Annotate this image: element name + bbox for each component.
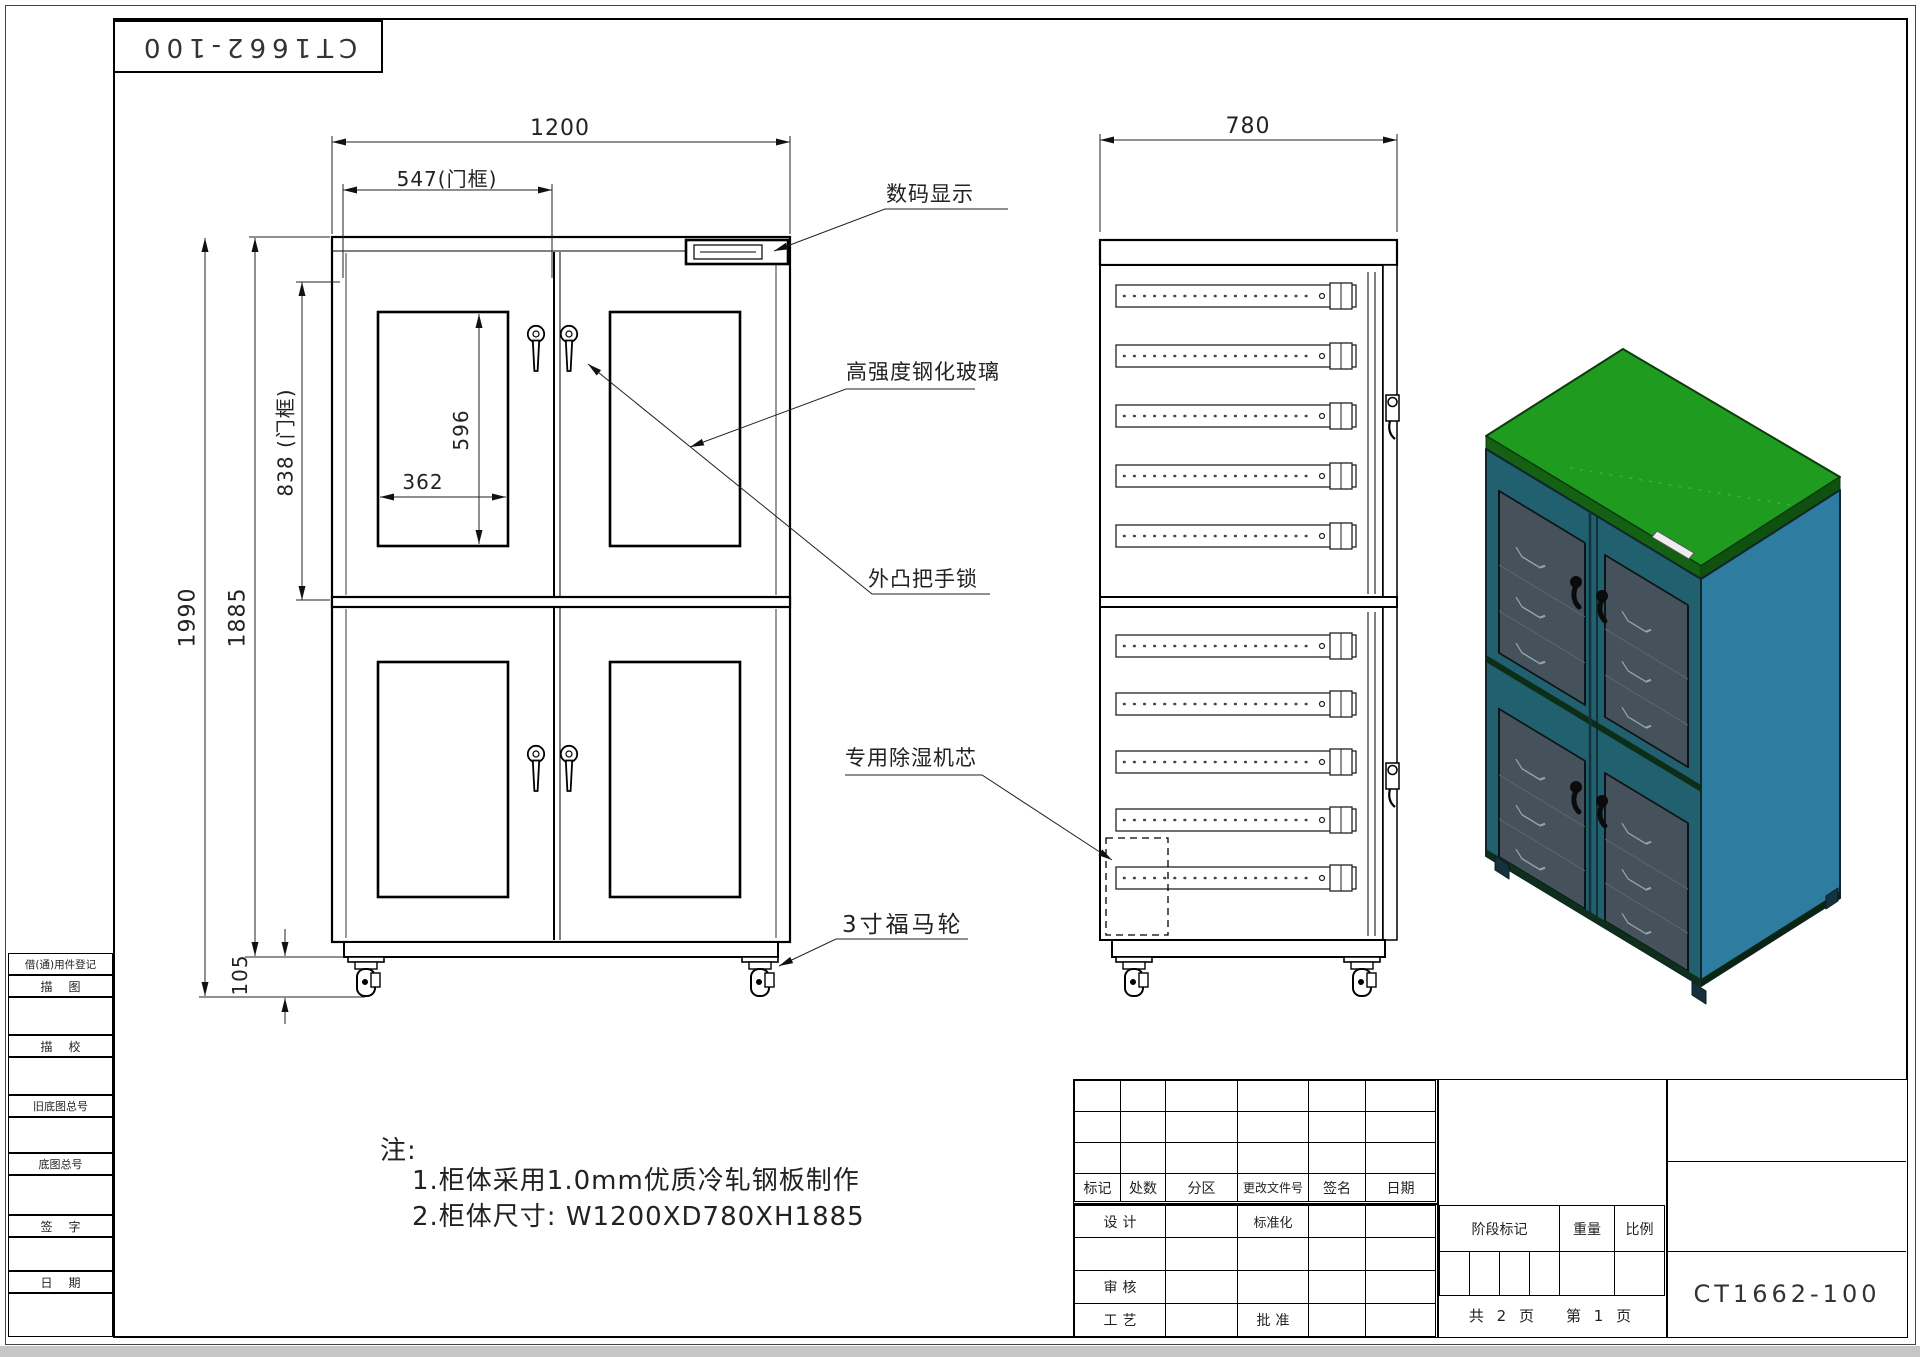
margin-field-blank — [8, 1293, 113, 1337]
margin-field-blank — [8, 1057, 113, 1095]
revision-cell — [1237, 1111, 1309, 1143]
revision-cell — [1365, 1111, 1436, 1143]
blank-cell — [1237, 1237, 1309, 1271]
stage-block: 阶段标记 重量 比例 共 2 页 第 1 页 — [1438, 1079, 1667, 1338]
revision-cell — [1308, 1080, 1366, 1112]
margin-field-blank — [8, 1237, 113, 1271]
revision-cell — [1074, 1111, 1121, 1143]
revision-cell — [1074, 1080, 1121, 1112]
dim-glass-width: 362 — [383, 470, 463, 494]
callout-digital-display: 数码显示 — [886, 178, 974, 208]
stage-cell — [1439, 1251, 1470, 1296]
revision-cell — [1237, 1080, 1309, 1112]
revision-cell — [1165, 1111, 1238, 1143]
revision-header-doc-no: 更改文件号 — [1237, 1173, 1309, 1202]
blank-cell — [1668, 1161, 1906, 1252]
blank-cell — [1365, 1270, 1436, 1304]
revision-cell — [1365, 1080, 1436, 1112]
sheet-total: 共 2 页 — [1469, 1305, 1538, 1326]
digital-display — [686, 240, 788, 264]
revision-cell — [1074, 1142, 1121, 1174]
blank-cell — [1668, 1080, 1906, 1162]
shelf-row — [1116, 403, 1356, 429]
margin-field-blank — [8, 1117, 113, 1153]
dim-total-height: 1990 — [176, 568, 201, 668]
margin-field-blank — [8, 997, 113, 1035]
check-label: 审核 — [1074, 1270, 1166, 1304]
revision-cell — [1308, 1111, 1366, 1143]
revision-cell — [1308, 1142, 1366, 1174]
dim-width-1200: 1200 — [510, 116, 610, 141]
weight-label: 重量 — [1559, 1205, 1615, 1252]
revision-cell — [1120, 1111, 1166, 1143]
shelf-row — [1116, 865, 1356, 891]
scale-value-cell — [1614, 1251, 1665, 1296]
dim-door-frame-height: 838 (门框) — [270, 368, 299, 518]
blank-cell — [1308, 1303, 1366, 1337]
blank-cell — [1365, 1205, 1436, 1238]
blank-cell — [1165, 1303, 1238, 1337]
callout-caster: 3寸福马轮 — [842, 905, 964, 939]
blank-cell — [1237, 1270, 1309, 1304]
revision-header-count: 处数 — [1120, 1173, 1166, 1202]
shelf-row — [1116, 691, 1356, 717]
dim-door-frame-width: 547(门框) — [377, 163, 517, 192]
blank-cell — [1165, 1205, 1238, 1238]
caster-icon — [348, 957, 384, 996]
margin-field-tracing-check: 描校 — [8, 1035, 113, 1057]
revision-header-date: 日期 — [1365, 1173, 1436, 1202]
margin-field-signature: 签字 — [8, 1215, 113, 1237]
shelf-row — [1116, 523, 1356, 549]
drawing-number-block: CT1662-100 — [1667, 1079, 1908, 1338]
blank-cell — [1074, 1237, 1166, 1271]
sheet-current: 第 1 页 — [1566, 1305, 1635, 1326]
shelf-row — [1116, 749, 1356, 775]
callout-dehumidifier: 专用除湿机芯 — [845, 742, 977, 772]
shelf-row — [1116, 343, 1356, 369]
margin-field-master-no: 底图总号 — [8, 1153, 113, 1175]
note-line-2: 2.柜体尺寸: W1200XD780XH1885 — [412, 1196, 865, 1233]
signature-table: 设计 标准化 审核 工艺 批准 — [1073, 1204, 1438, 1338]
blank-cell — [1308, 1205, 1366, 1238]
drawing-number: CT1662-100 — [1668, 1251, 1906, 1336]
callout-handle-lock: 外凸把手锁 — [868, 563, 978, 593]
standardization-label: 标准化 — [1237, 1205, 1309, 1238]
margin-field-blank — [8, 1175, 113, 1215]
side-view — [1100, 240, 1399, 996]
dim-glass-height: 596 — [449, 390, 473, 470]
blank-cell — [1439, 1080, 1665, 1206]
callout-tempered-glass: 高强度钢化玻璃 — [846, 356, 1000, 386]
shelf-row — [1116, 283, 1356, 309]
dim-depth-780: 780 — [1198, 114, 1298, 139]
revision-header-sign: 签名 — [1308, 1173, 1366, 1202]
blank-cell — [1365, 1237, 1436, 1271]
shelf-row — [1116, 633, 1356, 659]
revision-cell — [1365, 1142, 1436, 1174]
margin-field-tracing: 描图 — [8, 975, 113, 997]
margin-field-date: 日期 — [8, 1271, 113, 1293]
stage-cell — [1499, 1251, 1530, 1296]
approve-label: 批准 — [1237, 1303, 1309, 1337]
revision-table: 标记 处数 分区 更改文件号 签名 日期 — [1073, 1079, 1438, 1204]
shelf-row — [1116, 463, 1356, 489]
caster-icon — [1116, 957, 1152, 996]
revision-header-mark: 标记 — [1074, 1173, 1121, 1202]
design-label: 设计 — [1074, 1205, 1166, 1238]
caster-icon — [742, 957, 778, 996]
margin-field-reuse-record: 借(通)用件登记 — [8, 953, 113, 975]
page-edge-strip — [0, 1346, 1920, 1357]
revision-header-zone: 分区 — [1165, 1173, 1238, 1202]
part-number-box: CT1662-100 — [113, 20, 383, 73]
note-line-1: 1.柜体采用1.0mm优质冷轧钢板制作 — [412, 1160, 860, 1197]
blank-cell — [1308, 1270, 1366, 1304]
front-view — [332, 237, 790, 996]
margin-field-old-master-no: 旧底图总号 — [8, 1095, 113, 1117]
blank-cell — [1165, 1270, 1238, 1304]
scale-label: 比例 — [1614, 1205, 1665, 1252]
part-number-rotated: CT1662-100 — [138, 32, 357, 62]
blank-cell — [1365, 1303, 1436, 1337]
revision-cell — [1165, 1142, 1238, 1174]
sheet-pages: 共 2 页 第 1 页 — [1439, 1295, 1665, 1336]
blank-cell — [1308, 1237, 1366, 1271]
process-label: 工艺 — [1074, 1303, 1166, 1337]
revision-cell — [1165, 1080, 1238, 1112]
caster-icon — [1344, 957, 1380, 996]
blank-cell — [1165, 1237, 1238, 1271]
dim-body-height: 1885 — [226, 568, 251, 668]
stage-cell — [1529, 1251, 1560, 1296]
isometric-view — [1486, 349, 1840, 1004]
revision-cell — [1120, 1142, 1166, 1174]
drawing-sheet: CT1662-100 1200 547(门框) 780 596 362 838 … — [0, 0, 1920, 1357]
revision-cell — [1120, 1080, 1166, 1112]
dim-caster-height: 105 — [228, 940, 252, 1010]
revision-cell — [1237, 1142, 1309, 1174]
stage-mark-label: 阶段标记 — [1439, 1205, 1560, 1252]
shelf-row — [1116, 807, 1356, 833]
weight-value-cell — [1559, 1251, 1615, 1296]
stage-cell — [1469, 1251, 1500, 1296]
